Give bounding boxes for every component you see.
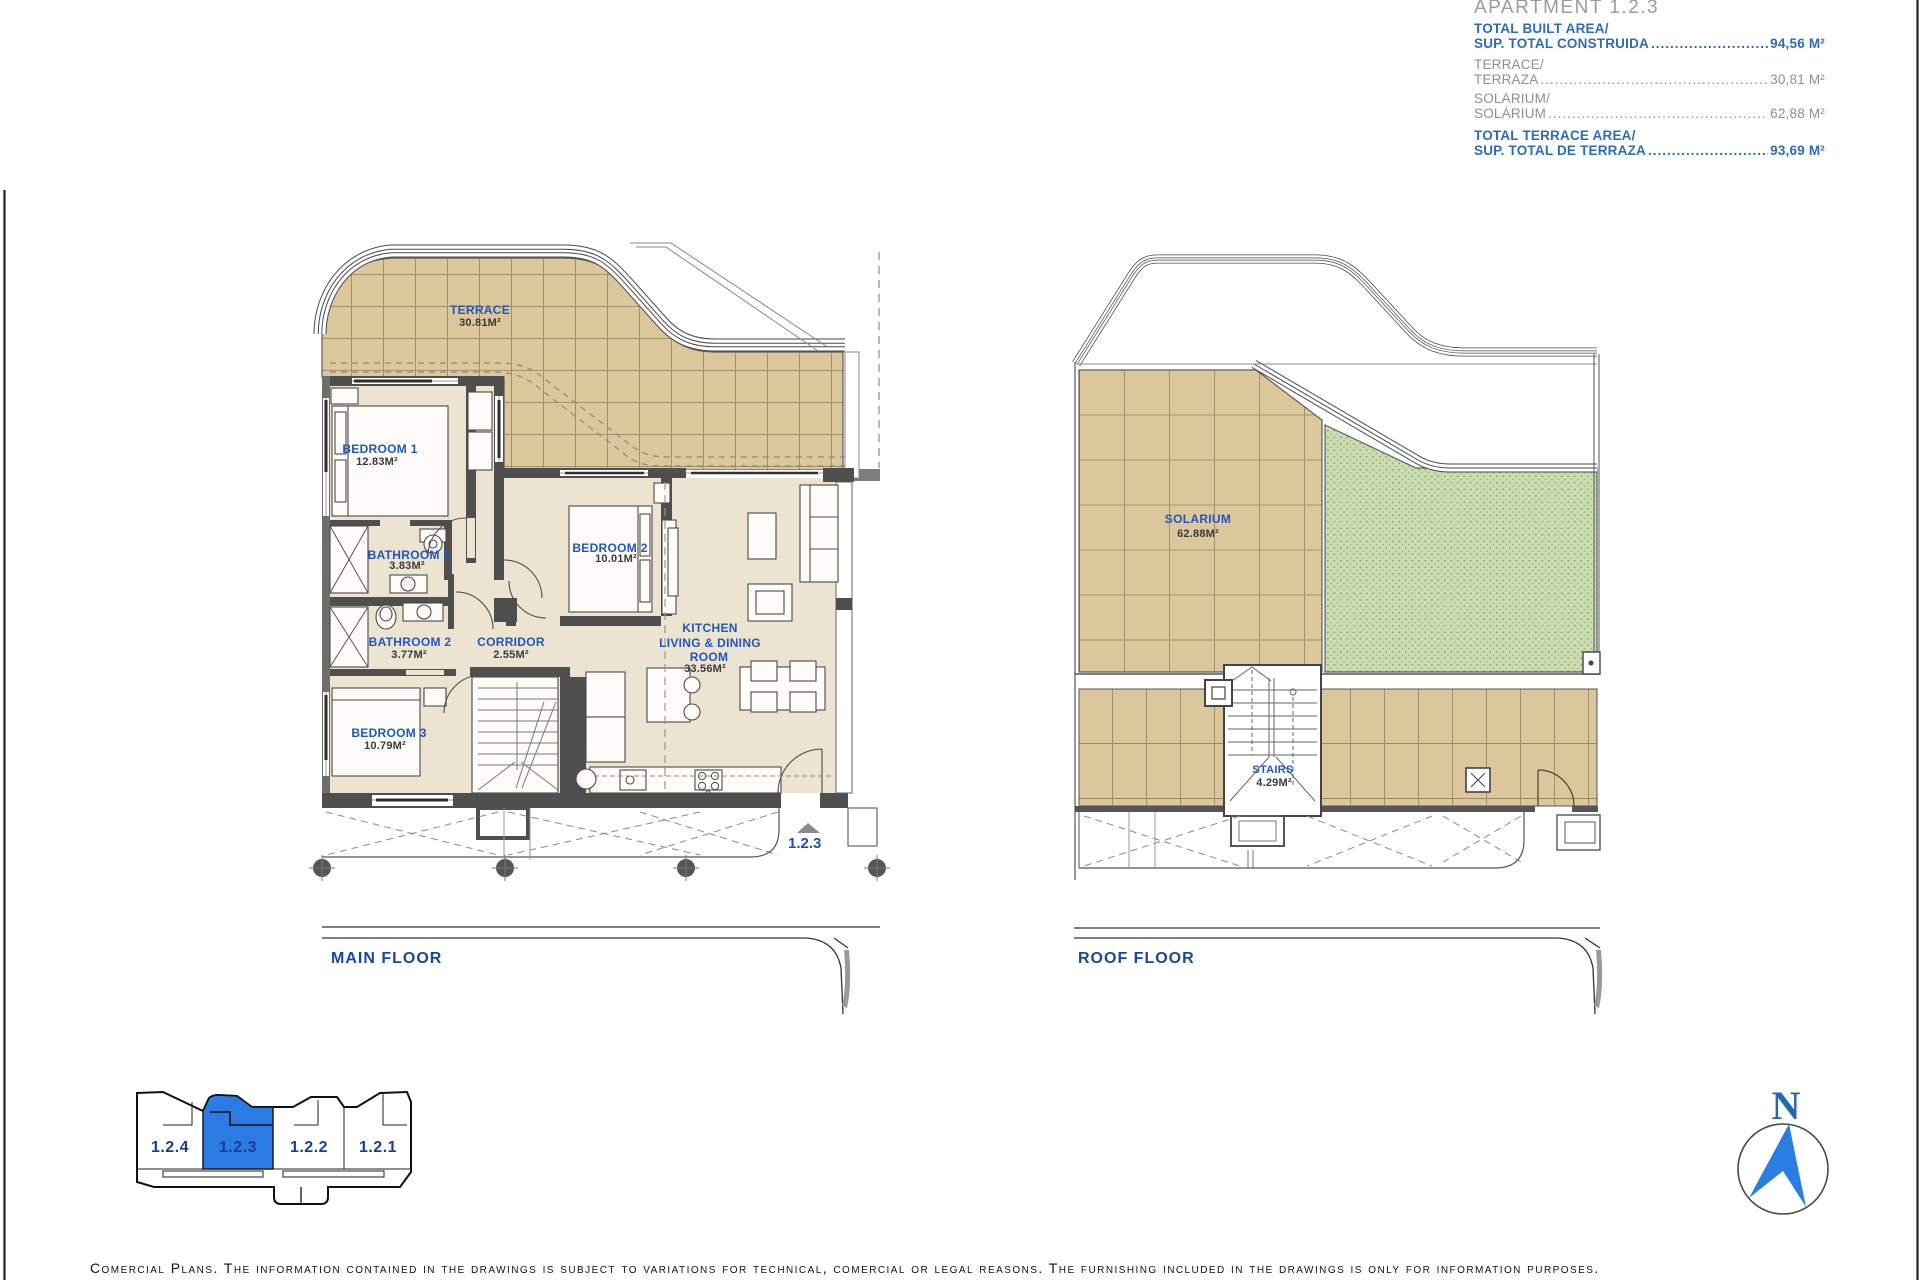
svg-text:N: N (1772, 1083, 1801, 1128)
